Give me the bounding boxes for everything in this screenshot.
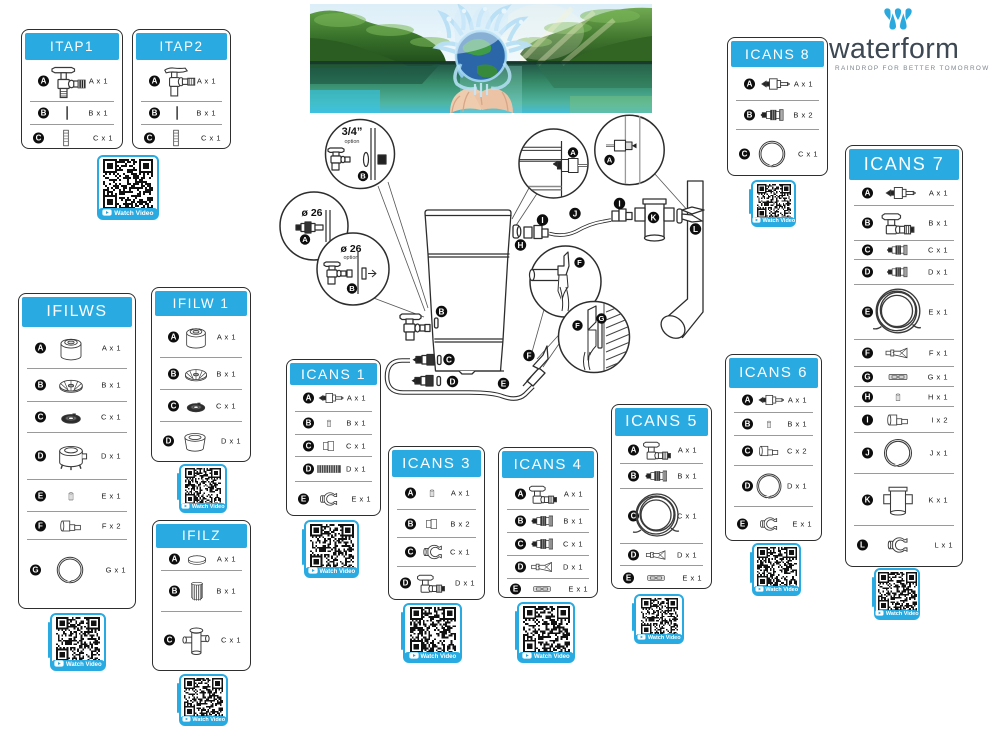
svg-text:D: D <box>450 377 456 386</box>
svg-text:B: B <box>439 307 445 316</box>
svg-text:G: G <box>599 314 605 323</box>
svg-text:F: F <box>526 351 531 360</box>
svg-text:A: A <box>302 235 308 244</box>
svg-text:B: B <box>349 284 355 293</box>
svg-text:option: option <box>344 255 359 261</box>
svg-text:B: B <box>360 172 366 181</box>
svg-text:3/4”: 3/4” <box>342 126 363 138</box>
svg-text:L: L <box>693 225 698 234</box>
svg-text:F: F <box>577 258 582 267</box>
svg-text:K: K <box>651 213 657 222</box>
svg-text:A: A <box>570 148 576 157</box>
svg-text:F: F <box>575 321 580 330</box>
svg-text:I: I <box>618 199 620 208</box>
svg-text:ø 26: ø 26 <box>301 207 322 219</box>
svg-text:E: E <box>501 379 507 388</box>
svg-text:option: option <box>345 139 360 145</box>
svg-text:C: C <box>446 355 452 364</box>
svg-text:H: H <box>518 241 524 250</box>
svg-text:A: A <box>607 156 613 165</box>
svg-text:I: I <box>541 216 543 225</box>
svg-text:J: J <box>573 209 578 218</box>
